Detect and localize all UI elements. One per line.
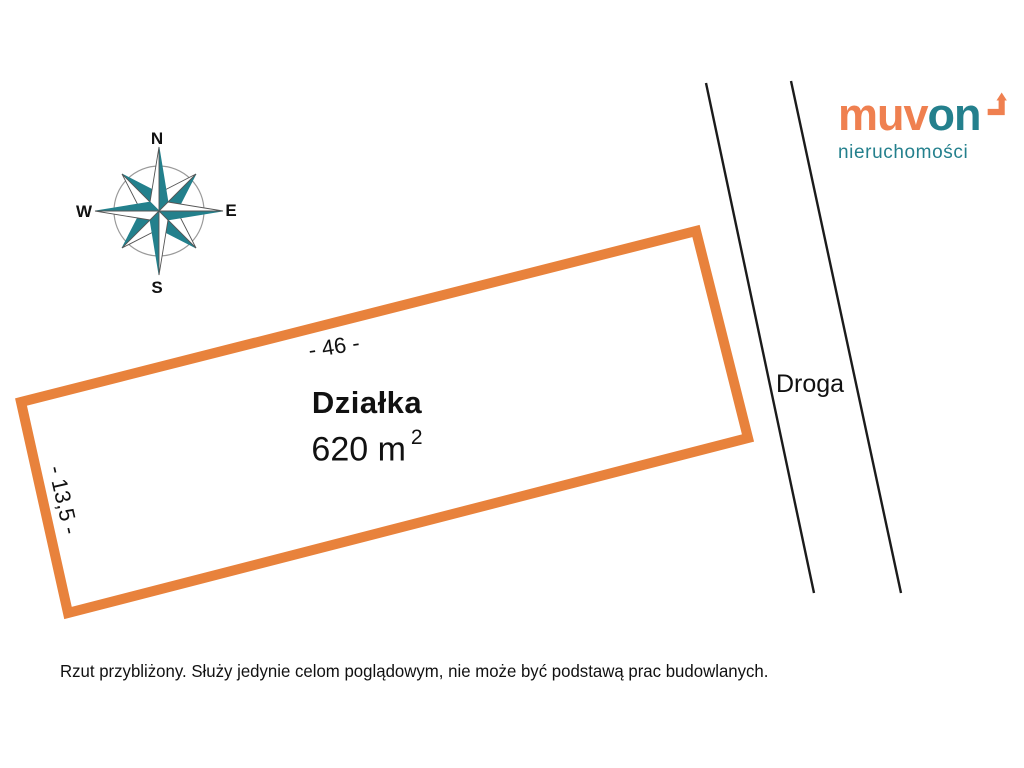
muvon-logo-wordmark: muvon: [838, 92, 1008, 137]
plot-area: 620 m2: [247, 430, 487, 469]
logo-text-on: on: [928, 89, 981, 140]
compass-label-west: W: [76, 202, 92, 222]
plot-info-block: Działka 620 m2: [247, 385, 487, 469]
compass-rose-icon: [95, 147, 223, 275]
plot-area-value: 620 m: [311, 430, 406, 468]
compass-label-east: E: [225, 201, 236, 221]
plot-map-page: N E S W - 46 - - 13,5 - Działka 620 m2 D…: [0, 0, 1024, 768]
logo-text-muv: muv: [838, 89, 928, 140]
muvon-logo: muvon nieruchomości: [838, 92, 1008, 164]
road-label: Droga: [776, 370, 844, 399]
compass-label-north: N: [151, 129, 163, 149]
plot-area-exponent: 2: [411, 426, 423, 449]
plot-title: Działka: [247, 385, 487, 421]
compass-label-south: S: [151, 278, 162, 298]
bent-arrow-up-right-icon: [985, 92, 1009, 116]
disclaimer-text: Rzut przybliżony. Służy jedynie celom po…: [60, 661, 924, 682]
logo-subtitle: nieruchomości: [838, 142, 1008, 164]
